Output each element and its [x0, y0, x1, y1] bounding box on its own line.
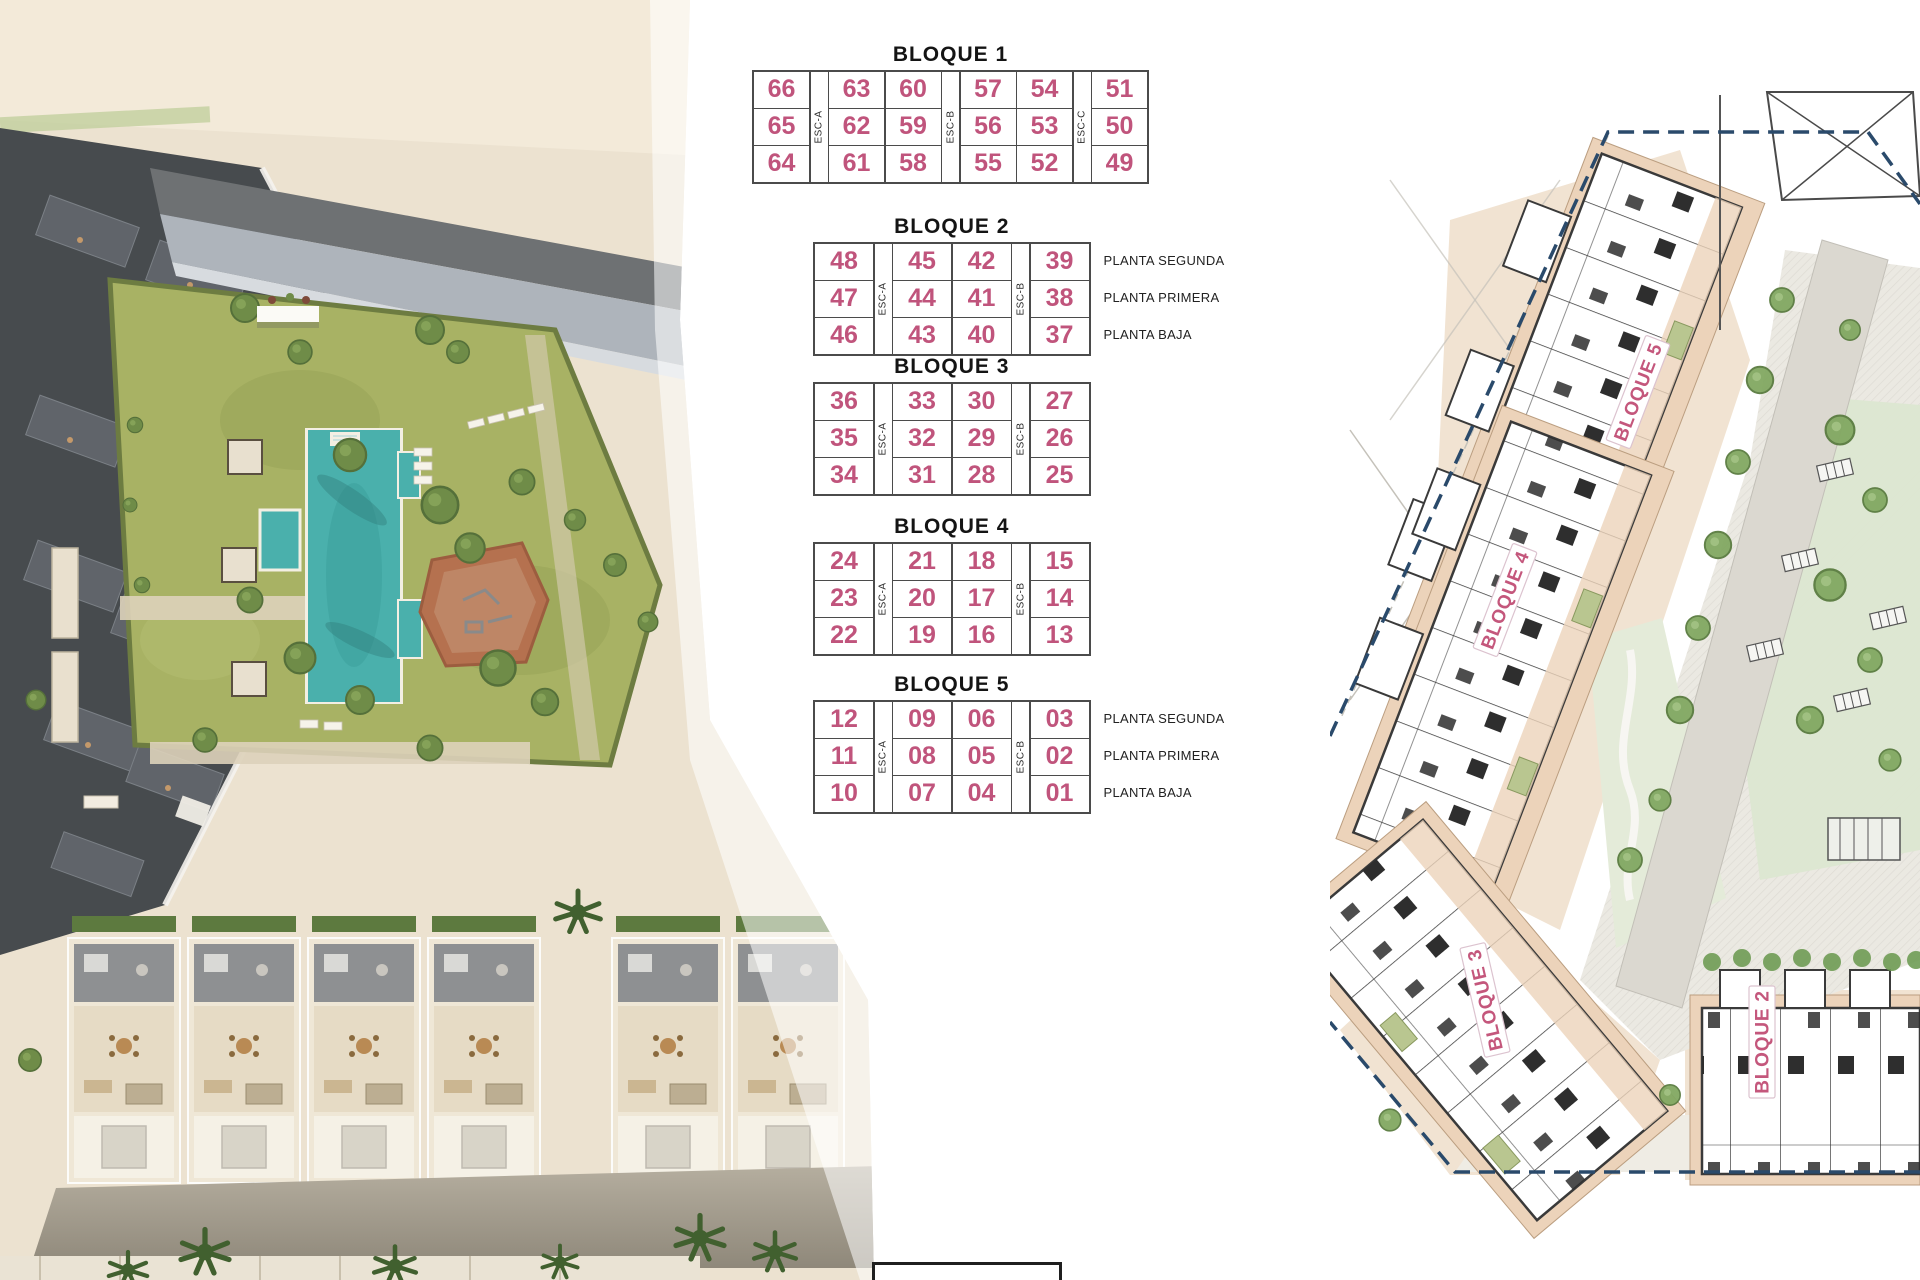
- brochure-sheet: BLOQUE 1ESC-AESC-BESC-C66636057545165625…: [0, 0, 1920, 1280]
- unit-number-cell: 04: [953, 776, 1011, 812]
- unit-number-cell: 23: [815, 581, 873, 617]
- plan-label-text: BLOQUE 2: [1753, 990, 1774, 1094]
- unit-number-cell: 19: [893, 618, 951, 654]
- unit-number-cell: 56: [961, 109, 1016, 145]
- plan-label-bloque-2: BLOQUE 2: [1749, 986, 1775, 1098]
- unit-number-cell: 45: [893, 244, 951, 280]
- staircase-label: ESC-A: [878, 282, 889, 315]
- unit-number-cell: 62: [829, 109, 884, 145]
- unit-number-cell: 16: [953, 618, 1011, 654]
- unit-number-cell: 65: [754, 109, 809, 145]
- unit-number-cell: 42: [953, 244, 1011, 280]
- unit-number-cell: 53: [1017, 109, 1072, 145]
- bloque-table-title: BLOQUE 5: [813, 672, 1091, 697]
- unit-number-cell: 27: [1031, 384, 1089, 420]
- unit-number-cell: 51: [1092, 72, 1147, 108]
- planta-level-label: PLANTA PRIMERA: [1104, 290, 1220, 305]
- unit-number-cell: 36: [815, 384, 873, 420]
- bloque-table-title: BLOQUE 4: [813, 514, 1091, 539]
- unit-number-cell: 66: [754, 72, 809, 108]
- unit-grid: ESC-AESC-B484542394744413846434037: [813, 242, 1091, 356]
- staircase-cell: ESC-A: [875, 702, 892, 812]
- staircase-cell: ESC-B: [1012, 702, 1029, 812]
- unit-number-cell: 15: [1031, 544, 1089, 580]
- unit-number-cell: 40: [953, 318, 1011, 354]
- unit-number-cell: 20: [893, 581, 951, 617]
- unit-number-cell: 03: [1031, 702, 1089, 738]
- unit-number-cell: 05: [953, 739, 1011, 775]
- unit-number-cell: 24: [815, 544, 873, 580]
- staircase-label: ESC-B: [945, 110, 956, 143]
- unit-number-cell: 48: [815, 244, 873, 280]
- staircase-label: ESC-A: [878, 740, 889, 773]
- unit-number-cell: 64: [754, 146, 809, 182]
- unit-number-cell: 52: [1017, 146, 1072, 182]
- staircase-label: ESC-A: [878, 422, 889, 455]
- unit-number-cell: 09: [893, 702, 951, 738]
- unit-number-cell: 25: [1031, 458, 1089, 494]
- unit-number-cell: 02: [1031, 739, 1089, 775]
- unit-grid: ESC-AESC-B120906031108050210070401: [813, 700, 1091, 814]
- unit-number-cell: 54: [1017, 72, 1072, 108]
- unit-number-cell: 06: [953, 702, 1011, 738]
- unit-number-cell: 13: [1031, 618, 1089, 654]
- unit-number-cell: 49: [1092, 146, 1147, 182]
- unit-number-cell: 46: [815, 318, 873, 354]
- unit-grid: ESC-AESC-B363330273532292634312825: [813, 382, 1091, 496]
- bloque-table-5: BLOQUE 5ESC-AESC-B1209060311080502100704…: [813, 672, 1091, 814]
- playground: [420, 543, 548, 666]
- unit-number-cell: 55: [961, 146, 1016, 182]
- staircase-label: ESC-B: [1015, 282, 1026, 315]
- unit-number-cell: 57: [961, 72, 1016, 108]
- staircase-cell: ESC-B: [1012, 544, 1029, 654]
- bloque-table-title: BLOQUE 3: [813, 354, 1091, 379]
- staircase-cell: ESC-A: [875, 244, 892, 354]
- unit-number-cell: 60: [886, 72, 941, 108]
- unit-number-cell: 61: [829, 146, 884, 182]
- unit-number-cell: 17: [953, 581, 1011, 617]
- unit-number-cell: 08: [893, 739, 951, 775]
- unit-number-cell: 32: [893, 421, 951, 457]
- unit-grid: ESC-AESC-B242118152320171422191613: [813, 542, 1091, 656]
- unit-number-cell: 41: [953, 281, 1011, 317]
- unit-number-cell: 18: [953, 544, 1011, 580]
- staircase-cell: ESC-A: [875, 384, 892, 494]
- bloque-table-3: BLOQUE 3ESC-AESC-B3633302735322926343128…: [813, 354, 1091, 496]
- bloque-table-title: BLOQUE 2: [813, 214, 1091, 239]
- staircase-label: ESC-B: [1015, 582, 1026, 615]
- staircase-cell: ESC-C: [1074, 72, 1091, 182]
- unit-number-cell: 12: [815, 702, 873, 738]
- staircase-cell: ESC-B: [1012, 384, 1029, 494]
- pergola: [1828, 818, 1900, 860]
- unit-number-cell: 58: [886, 146, 941, 182]
- staircase-label: ESC-A: [814, 110, 825, 143]
- unit-number-cell: 30: [953, 384, 1011, 420]
- unit-number-cell: 37: [1031, 318, 1089, 354]
- staircase-cell: ESC-A: [811, 72, 828, 182]
- unit-number-cell: 29: [953, 421, 1011, 457]
- unit-number-cell: 07: [893, 776, 951, 812]
- unit-number-cell: 38: [1031, 281, 1089, 317]
- unit-number-cell: 14: [1031, 581, 1089, 617]
- unit-grid: ESC-AESC-BESC-C6663605754516562595653506…: [752, 70, 1149, 184]
- unit-number-cell: 28: [953, 458, 1011, 494]
- planta-level-label: PLANTA BAJA: [1104, 327, 1192, 342]
- staircase-label: ESC-B: [1015, 740, 1026, 773]
- staircase-label: ESC-C: [1077, 110, 1088, 144]
- staircase-label: ESC-A: [878, 582, 889, 615]
- legend-box: [872, 1262, 1062, 1280]
- unit-number-cell: 63: [829, 72, 884, 108]
- bloque-2-building: [1690, 949, 1920, 1185]
- unit-number-cell: 50: [1092, 109, 1147, 145]
- staircase-label: ESC-B: [1015, 422, 1026, 455]
- planta-level-label: PLANTA BAJA: [1104, 785, 1192, 800]
- unit-number-cell: 47: [815, 281, 873, 317]
- unit-number-cell: 22: [815, 618, 873, 654]
- bloque-table-title: BLOQUE 1: [752, 42, 1149, 67]
- unit-number-cell: 59: [886, 109, 941, 145]
- planta-level-label: PLANTA PRIMERA: [1104, 748, 1220, 763]
- staircase-cell: ESC-A: [875, 544, 892, 654]
- unit-number-cell: 10: [815, 776, 873, 812]
- staircase-cell: ESC-B: [942, 72, 959, 182]
- unit-number-cell: 01: [1031, 776, 1089, 812]
- bloque-table-4: BLOQUE 4ESC-AESC-B2421181523201714221916…: [813, 514, 1091, 656]
- unit-number-cell: 11: [815, 739, 873, 775]
- site-plan: BLOQUE 5 BLOQUE 4 BLOQUE 3 BLOQUE 2: [1330, 0, 1920, 1280]
- unit-number-cell: 35: [815, 421, 873, 457]
- unit-number-cell: 33: [893, 384, 951, 420]
- planta-level-label: PLANTA SEGUNDA: [1104, 711, 1225, 726]
- unit-number-cell: 44: [893, 281, 951, 317]
- unit-number-cell: 31: [893, 458, 951, 494]
- bloque-table-2: BLOQUE 2ESC-AESC-B4845423947444138464340…: [813, 214, 1091, 356]
- staircase-cell: ESC-B: [1012, 244, 1029, 354]
- unit-number-cell: 21: [893, 544, 951, 580]
- aerial-render: [0, 0, 880, 1280]
- unit-number-cell: 34: [815, 458, 873, 494]
- bloque-table-1: BLOQUE 1ESC-AESC-BESC-C66636057545165625…: [752, 42, 1149, 184]
- planta-level-label: PLANTA SEGUNDA: [1104, 253, 1225, 268]
- unit-number-cell: 43: [893, 318, 951, 354]
- unit-number-cell: 39: [1031, 244, 1089, 280]
- unit-number-cell: 26: [1031, 421, 1089, 457]
